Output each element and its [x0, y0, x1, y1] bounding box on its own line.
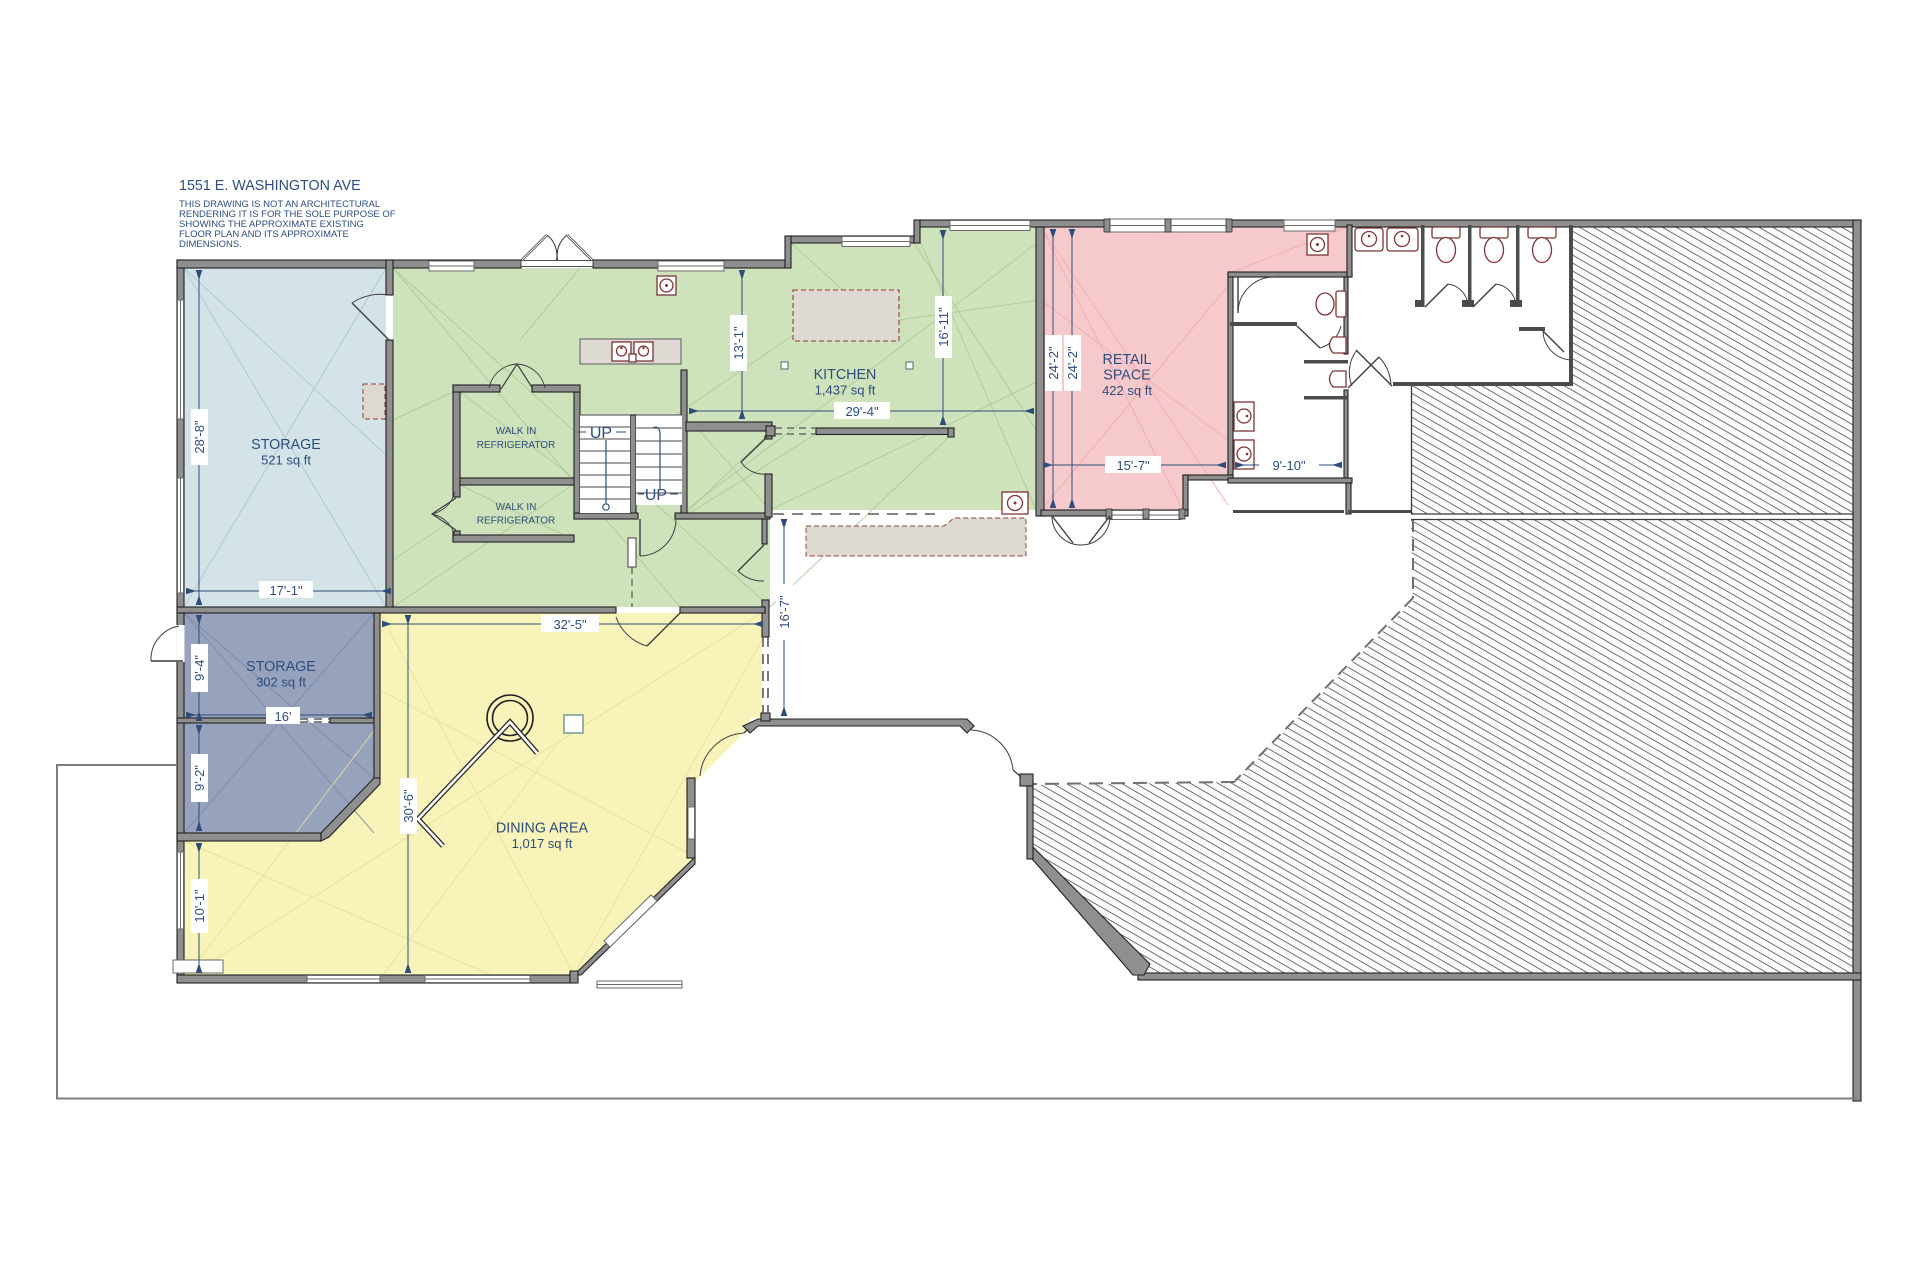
- svg-text:16': 16': [275, 709, 292, 724]
- svg-text:16'-11": 16'-11": [936, 307, 951, 347]
- svg-text:STORAGE: STORAGE: [246, 659, 316, 675]
- svg-text:WALK IN: WALK IN: [496, 502, 537, 513]
- svg-text:1,437 sq ft: 1,437 sq ft: [815, 383, 876, 398]
- svg-text:SPACE: SPACE: [1103, 368, 1150, 384]
- svg-text:KITCHEN: KITCHEN: [814, 367, 877, 383]
- svg-text:RETAIL: RETAIL: [1103, 352, 1152, 368]
- svg-text:UP: UP: [590, 425, 612, 442]
- svg-text:17'-1": 17'-1": [269, 583, 303, 598]
- svg-text:29'-4": 29'-4": [845, 404, 879, 419]
- svg-text:1,017 sq ft: 1,017 sq ft: [512, 836, 573, 851]
- svg-text:28'-8": 28'-8": [192, 420, 207, 454]
- svg-text:REFRIGERATOR: REFRIGERATOR: [477, 516, 556, 527]
- svg-text:30'-6": 30'-6": [401, 789, 416, 823]
- svg-text:302 sq ft: 302 sq ft: [256, 675, 306, 690]
- svg-text:DIMENSIONS.: DIMENSIONS.: [179, 239, 242, 250]
- svg-text:REFRIGERATOR: REFRIGERATOR: [477, 440, 556, 451]
- svg-text:24'-2": 24'-2": [1065, 346, 1080, 380]
- svg-text:WALK IN: WALK IN: [496, 426, 537, 437]
- svg-text:24'-2": 24'-2": [1046, 346, 1061, 380]
- svg-text:DINING AREA: DINING AREA: [496, 821, 589, 837]
- svg-text:32'-5": 32'-5": [553, 617, 587, 632]
- svg-text:9'-4": 9'-4": [192, 655, 207, 681]
- svg-text:13'-1": 13'-1": [731, 326, 746, 360]
- svg-text:15'-7": 15'-7": [1116, 458, 1150, 473]
- svg-text:9'-2": 9'-2": [192, 765, 207, 791]
- svg-text:16'-7": 16'-7": [777, 595, 792, 629]
- svg-text:STORAGE: STORAGE: [251, 437, 321, 453]
- svg-text:521 sq ft: 521 sq ft: [261, 453, 311, 468]
- svg-text:1551 E. WASHINGTON AVE: 1551 E. WASHINGTON AVE: [179, 178, 361, 194]
- svg-text:10'-1": 10'-1": [192, 889, 207, 923]
- svg-text:UP: UP: [645, 487, 667, 504]
- svg-text:422 sq ft: 422 sq ft: [1102, 383, 1152, 398]
- svg-text:9'-10": 9'-10": [1272, 458, 1306, 473]
